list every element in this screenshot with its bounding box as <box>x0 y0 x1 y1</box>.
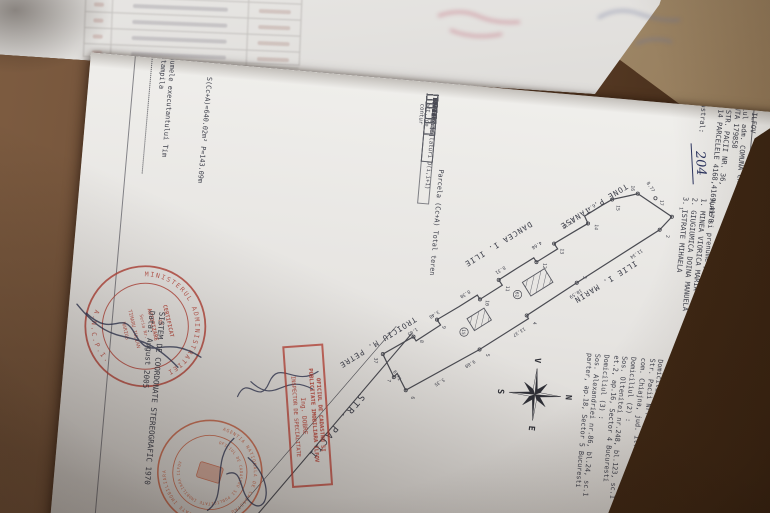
photo-of-cadastral-plan: PLAN DE AMPLASAMENT SI DELIMITARE A CORP… <box>0 0 770 513</box>
pink-smudge <box>438 12 520 36</box>
blue-smudge <box>598 11 680 44</box>
faint-handwriting-smudges <box>0 0 770 513</box>
